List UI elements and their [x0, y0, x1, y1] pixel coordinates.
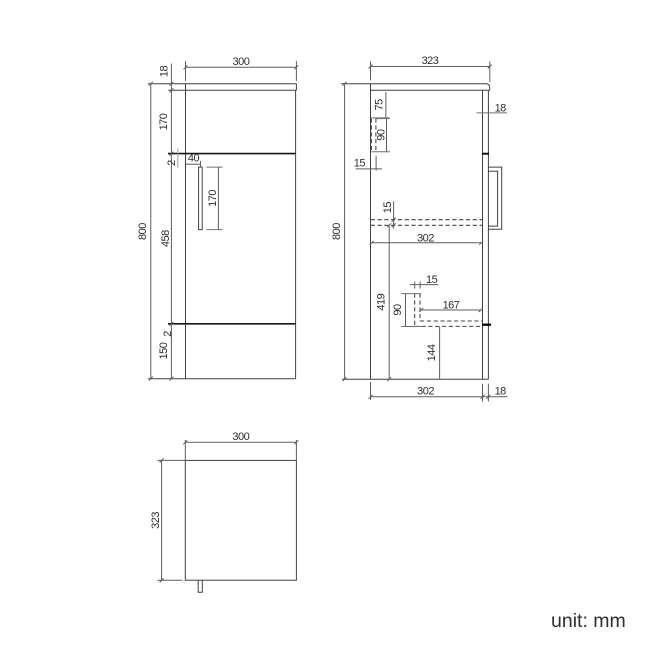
svg-text:90: 90 [376, 129, 388, 141]
svg-text:75: 75 [373, 99, 385, 111]
svg-text:2: 2 [166, 160, 178, 166]
svg-text:419: 419 [376, 293, 388, 310]
svg-text:2: 2 [162, 331, 174, 337]
svg-text:167: 167 [443, 300, 460, 312]
svg-text:144: 144 [426, 344, 438, 361]
svg-text:300: 300 [232, 56, 249, 68]
svg-text:800: 800 [331, 223, 343, 240]
svg-text:170: 170 [158, 113, 170, 130]
svg-text:302: 302 [417, 386, 434, 398]
svg-text:170: 170 [207, 190, 219, 207]
svg-text:40: 40 [188, 152, 200, 164]
svg-text:323: 323 [150, 512, 162, 529]
svg-text:15: 15 [382, 202, 394, 214]
svg-text:800: 800 [137, 223, 149, 240]
svg-text:18: 18 [158, 66, 170, 78]
svg-text:323: 323 [422, 55, 439, 67]
svg-text:18: 18 [495, 386, 507, 398]
svg-text:458: 458 [160, 230, 172, 247]
svg-text:unit: mm: unit: mm [551, 610, 626, 632]
svg-text:15: 15 [354, 157, 366, 169]
svg-text:90: 90 [392, 304, 404, 316]
svg-text:300: 300 [232, 431, 249, 443]
svg-text:302: 302 [417, 232, 434, 244]
svg-text:18: 18 [495, 102, 507, 114]
svg-text:15: 15 [426, 274, 438, 286]
svg-text:150: 150 [158, 342, 170, 359]
